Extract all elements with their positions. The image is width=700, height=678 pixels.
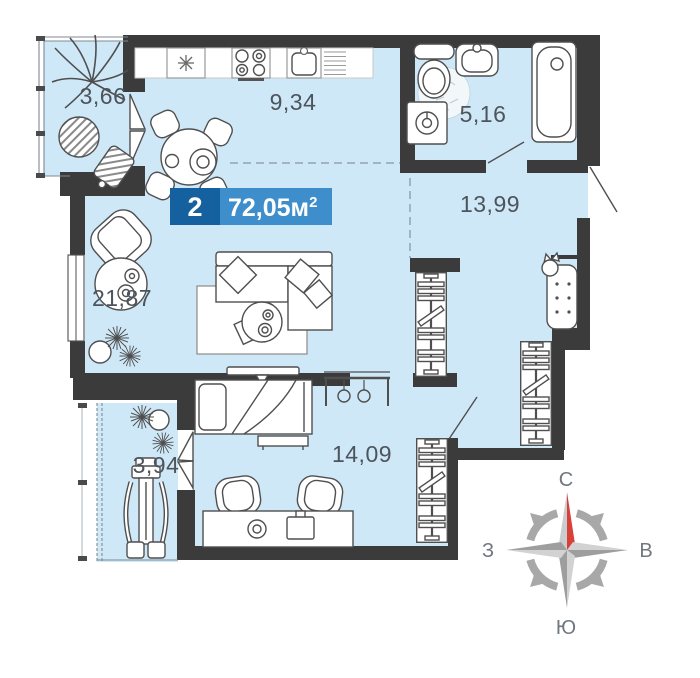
dining-table bbox=[161, 129, 217, 185]
compass-north-needle-red bbox=[567, 492, 575, 550]
wall-segment bbox=[410, 258, 460, 272]
wall-segment bbox=[192, 546, 458, 560]
compass-north-label: С bbox=[559, 469, 573, 491]
wall-segment bbox=[552, 350, 565, 450]
room-area-label-balcony-top: 3,66 bbox=[80, 83, 127, 109]
wall-segment bbox=[400, 160, 486, 173]
room-area-label-living-room: 21,87 bbox=[92, 285, 152, 311]
wall-segment bbox=[458, 448, 564, 460]
room-area-label-bedroom: 14,09 bbox=[332, 441, 392, 467]
floor-plan-canvas: 2 72,05м2 3,66 9,34 5,16 13,99 21,87 14,… bbox=[0, 0, 700, 678]
room-area-label-kitchen: 9,34 bbox=[270, 89, 317, 115]
wall-segment bbox=[177, 373, 195, 430]
wall-segment bbox=[128, 35, 600, 48]
balcony-table bbox=[59, 117, 99, 157]
desk bbox=[203, 511, 353, 547]
french-door-balcony-bottom bbox=[178, 432, 193, 488]
stove-icon bbox=[232, 48, 270, 81]
compass-rose: С В З Ю bbox=[482, 469, 653, 639]
bed bbox=[195, 380, 312, 434]
room-area-label-hallway: 13,99 bbox=[460, 191, 520, 217]
floor-plan-page: 2 72,05м2 3,66 9,34 5,16 13,99 21,87 14,… bbox=[0, 0, 700, 678]
window-left bbox=[68, 255, 84, 341]
wall-segment bbox=[70, 341, 85, 378]
washing-machine-icon bbox=[407, 102, 447, 144]
room-count-label: 2 bbox=[187, 192, 202, 222]
wardrobe bbox=[417, 439, 448, 543]
room-area-label-bathroom: 5,16 bbox=[460, 101, 507, 127]
room-area-label-balcony-bottom: 3,94 bbox=[133, 452, 180, 478]
total-area-label: 72,05м2 bbox=[228, 194, 317, 222]
pillow bbox=[199, 384, 226, 430]
compass-east-label: В bbox=[639, 540, 652, 562]
entrance-door-swing bbox=[590, 167, 617, 212]
wall-segment bbox=[70, 178, 85, 255]
wardrobe bbox=[416, 273, 447, 377]
wardrobe bbox=[521, 342, 552, 446]
compass-south-label: Ю bbox=[556, 617, 576, 639]
compass-west-label: З bbox=[482, 540, 494, 562]
sink-icon bbox=[456, 44, 498, 76]
kitchen-counter bbox=[135, 48, 373, 82]
wall-segment bbox=[577, 35, 600, 147]
floor-entrance-gap bbox=[577, 166, 588, 218]
wall-segment bbox=[577, 140, 600, 166]
compass-north-needle bbox=[559, 492, 567, 550]
bathtub-icon bbox=[532, 42, 576, 142]
wall-segment bbox=[552, 328, 590, 350]
wall-segment bbox=[400, 35, 415, 165]
wall-segment bbox=[577, 218, 590, 336]
wall-segment bbox=[448, 438, 458, 552]
fridge-icon bbox=[167, 48, 205, 78]
area-badge: 2 72,05м2 bbox=[170, 188, 332, 225]
